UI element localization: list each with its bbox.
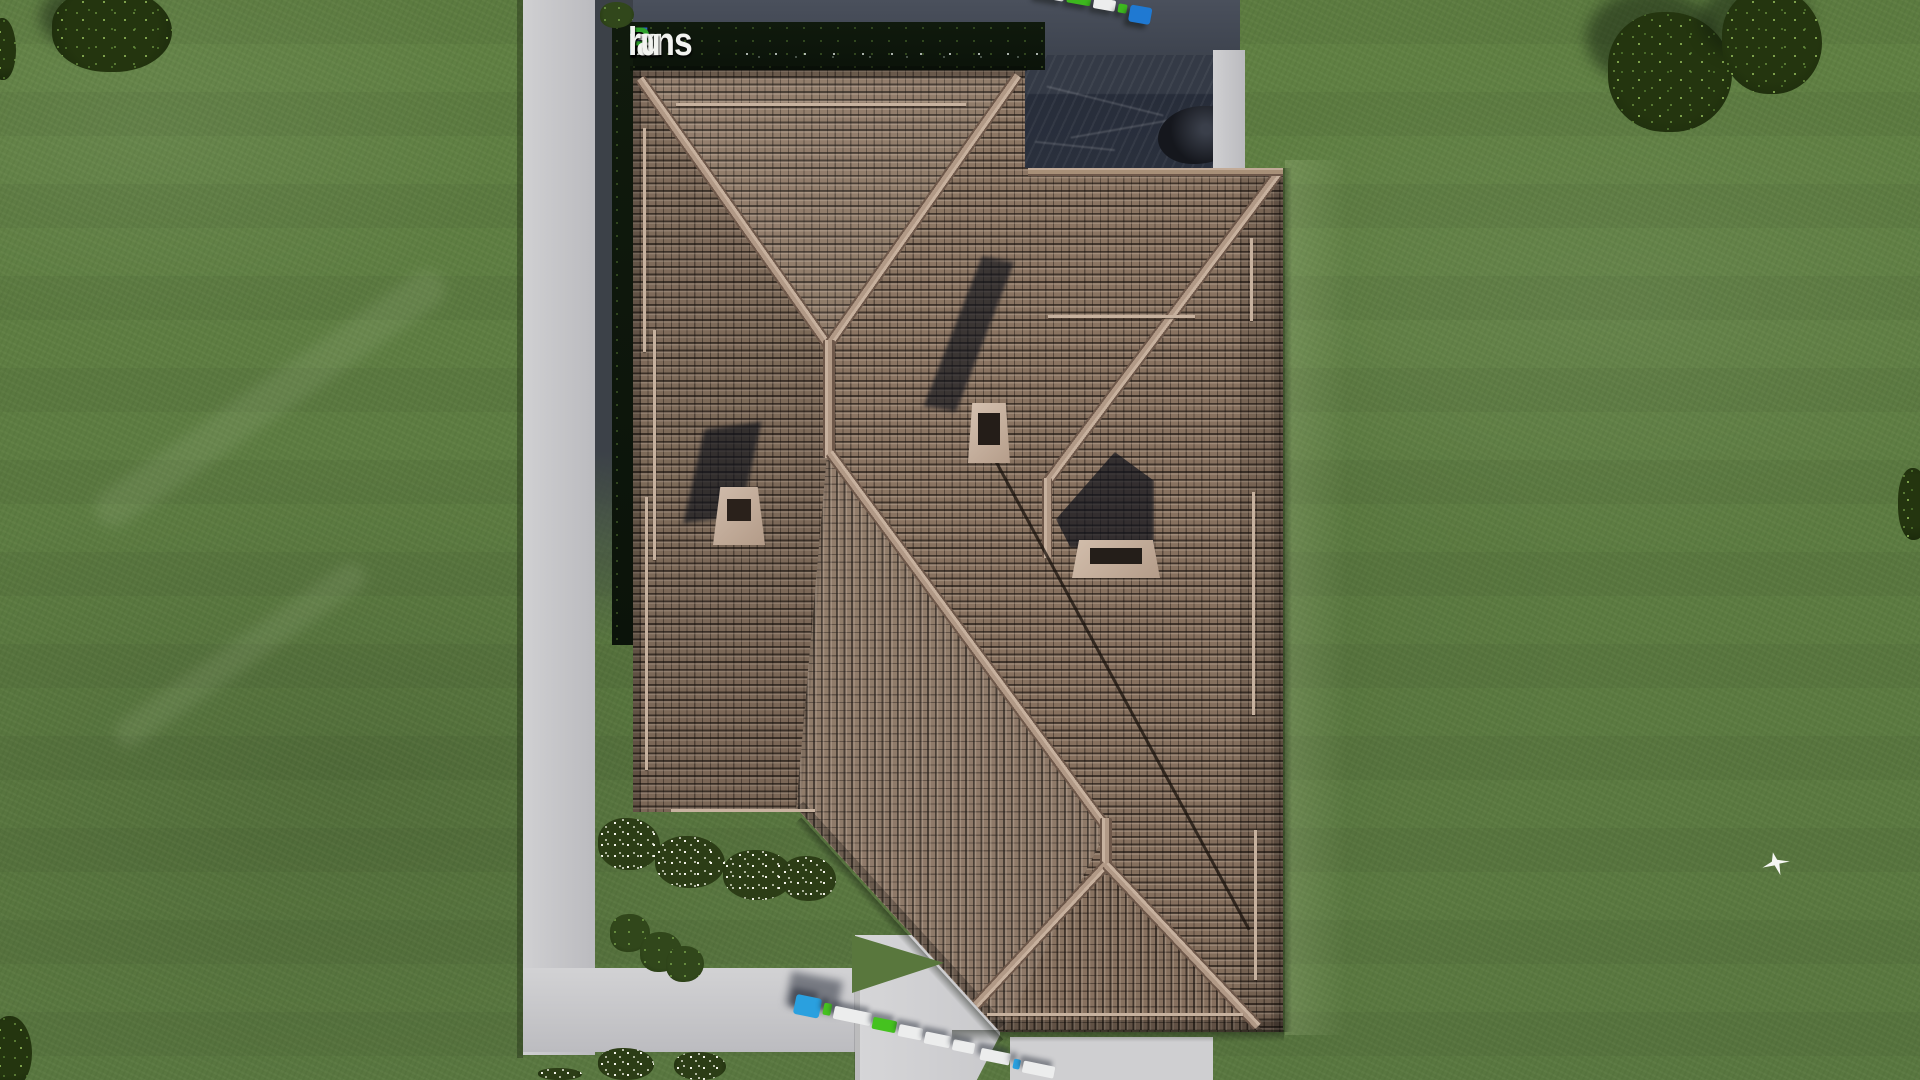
snowguard [1250, 238, 1253, 321]
flower-bush [598, 1048, 654, 1080]
truck-cab [1128, 4, 1153, 25]
eave-inner-top [633, 70, 1025, 79]
ridge-vertical-upper [823, 340, 835, 458]
snowguard [1254, 830, 1257, 980]
hedge-flowers [742, 48, 1042, 64]
truck-trailer-segment [979, 1048, 1011, 1066]
truck-trailer-segment [897, 1024, 923, 1041]
tree-top-right-2 [1722, 0, 1822, 94]
truck-cab [793, 994, 822, 1019]
flower-bush [538, 1068, 582, 1080]
chimney-center [968, 403, 1010, 463]
snowguard [1048, 315, 1195, 318]
eave-shadow-top [630, 66, 1027, 71]
truck-trailer-segment [1066, 0, 1092, 6]
chimney-center-flue [978, 413, 1000, 445]
eave-inner-right [1274, 168, 1283, 1032]
snowguard [645, 497, 648, 770]
sunlit-grass-band [1285, 160, 1347, 1035]
aerial-render: FixPlans.ru [0, 0, 1920, 1080]
hedge-left [612, 22, 633, 645]
snowguard [1252, 492, 1255, 715]
eave-shadow-right [1283, 168, 1292, 1032]
chimney-right-flue [1090, 548, 1142, 564]
truck-trailer-segment [1117, 3, 1127, 13]
tree-right-edge [1898, 468, 1920, 540]
flower-bush [655, 836, 725, 888]
snowguard [653, 330, 656, 560]
terrace-walk [1213, 50, 1245, 170]
gutter-line [671, 809, 815, 812]
concrete-path-vertical [523, 0, 595, 1055]
truck-trailer-segment [822, 1003, 832, 1016]
truck-trailer-segment [1036, 0, 1066, 2]
truck-trailer-segment [924, 1031, 952, 1048]
chimney-left-flue [727, 499, 751, 521]
flower-bush [781, 856, 836, 901]
truck-trailer-segment [833, 1006, 873, 1026]
gutter-line [987, 1013, 1243, 1016]
eave-inner-left [633, 70, 641, 812]
truck-trailer-segment [1093, 0, 1117, 12]
chimney-left [713, 487, 765, 545]
chimney-right [1072, 540, 1160, 578]
flower-bush [598, 818, 660, 870]
flower-bush [674, 1052, 726, 1080]
truck-trailer-segment [871, 1017, 897, 1034]
watermark-segment: ru [628, 22, 660, 62]
snowguard [643, 128, 646, 352]
snowguard [676, 103, 966, 106]
truck-trailer-segment [1012, 1059, 1021, 1070]
truck-trailer-segment [1022, 1061, 1056, 1079]
